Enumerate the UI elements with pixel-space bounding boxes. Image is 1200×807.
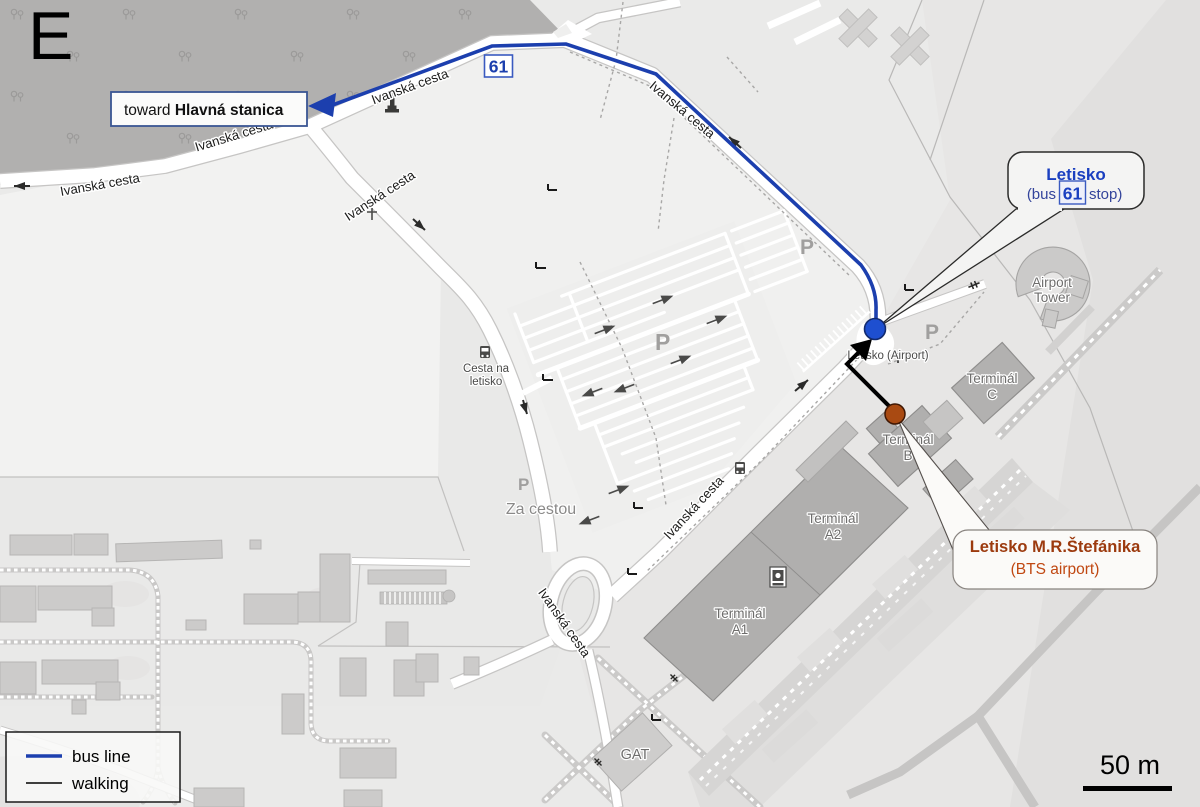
svg-text:50 m: 50 m [1100, 750, 1160, 780]
svg-text:Airport: Airport [1032, 275, 1072, 290]
svg-text:P: P [800, 236, 814, 259]
svg-text:walking: walking [71, 774, 129, 793]
svg-text:(bus: (bus [1027, 186, 1056, 203]
svg-text:61: 61 [489, 57, 509, 77]
svg-text:E: E [28, 0, 73, 74]
svg-text:Terminál: Terminál [714, 606, 765, 621]
svg-text:GAT: GAT [621, 747, 650, 763]
svg-text:stop): stop) [1089, 186, 1122, 203]
svg-text:P: P [518, 475, 529, 494]
svg-text:A2: A2 [825, 527, 842, 542]
svg-text:Terminál: Terminál [807, 511, 858, 526]
svg-text:61: 61 [1063, 184, 1083, 204]
svg-text:(BTS airport): (BTS airport) [1011, 561, 1100, 578]
svg-text:C: C [987, 387, 997, 402]
svg-text:P: P [925, 321, 939, 344]
svg-text:A1: A1 [732, 622, 749, 637]
svg-text:toward Hlavná stanica: toward Hlavná stanica [124, 102, 284, 119]
svg-text:Za cestou: Za cestou [506, 501, 576, 518]
svg-text:Letisko M.R.Štefánika: Letisko M.R.Štefánika [970, 537, 1141, 556]
svg-text:Terminál: Terminál [966, 371, 1017, 386]
svg-text:Cesta na: Cesta na [463, 363, 510, 375]
svg-text:P: P [655, 329, 670, 355]
svg-text:Tower: Tower [1034, 290, 1071, 305]
svg-text:bus line: bus line [72, 747, 131, 766]
svg-text:letisko: letisko [470, 376, 503, 388]
